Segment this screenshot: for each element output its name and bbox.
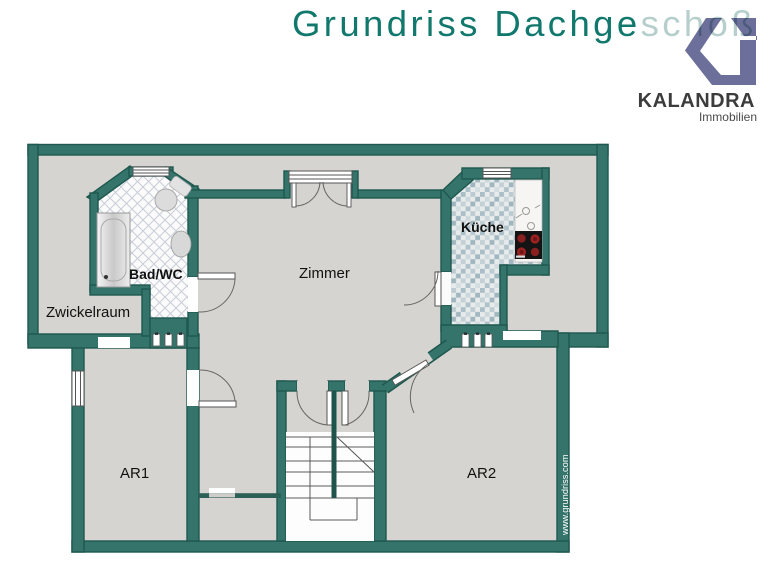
- svg-text:Zwickelraum: Zwickelraum: [46, 304, 130, 321]
- svg-text:Grundriss Dachgeschoß: Grundriss Dachgeschoß: [292, 3, 757, 44]
- svg-text:Küche: Küche: [461, 219, 504, 235]
- svg-text:Immobilien: Immobilien: [699, 110, 757, 124]
- svg-text:AR2: AR2: [467, 465, 496, 482]
- svg-text:Zimmer: Zimmer: [299, 265, 350, 282]
- svg-text:AR1: AR1: [120, 465, 149, 482]
- svg-text:KALANDRA: KALANDRA: [638, 90, 755, 112]
- svg-text:www.grundriss.com: www.grundriss.com: [560, 454, 570, 536]
- svg-text:Bad/WC: Bad/WC: [129, 266, 183, 282]
